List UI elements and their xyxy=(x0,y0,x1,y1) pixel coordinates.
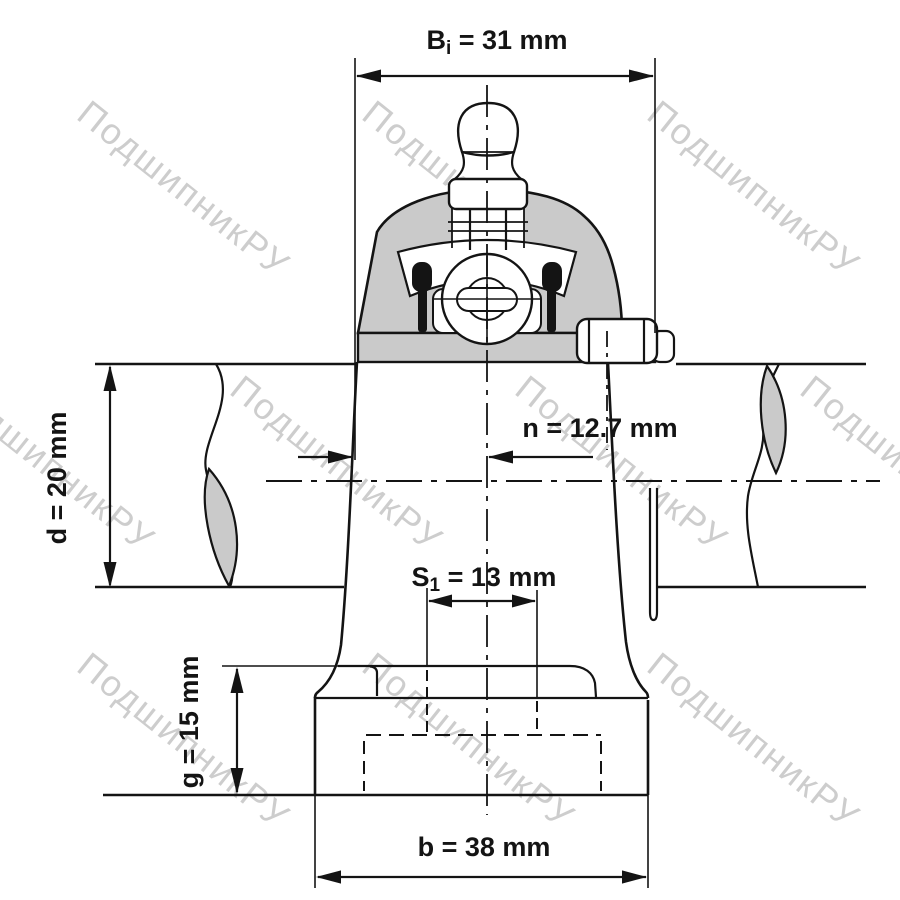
nipple-collar xyxy=(449,179,527,209)
watermark-text: ПодшипникРУ xyxy=(223,367,451,560)
technical-drawing: ПодшипникРУ ПодшипникРУ ПодшипникРУ Подш… xyxy=(0,0,900,900)
dimension-label-b: b = 38 mm xyxy=(418,832,551,862)
dimension-b: b = 38 mm xyxy=(315,795,648,888)
dimension-label-n: n = 12.7 mm xyxy=(522,413,677,443)
shaft xyxy=(95,364,866,587)
inner-ring-end-face xyxy=(650,488,657,620)
watermark-text: ПодшипникРУ xyxy=(640,92,868,285)
nipple-cap xyxy=(458,103,518,156)
watermark-text: ПодшипникРУ xyxy=(355,644,583,837)
watermark-text: ПодшипникРУ xyxy=(508,367,736,560)
shaft-break-right-lens xyxy=(761,366,786,473)
watermark-text: ПодшипникРУ xyxy=(793,367,900,560)
dimension-label-bi: Bi = 31 mm xyxy=(426,25,567,59)
dimension-S1: S1 = 13 mm xyxy=(412,562,557,698)
dimension-label-g: g = 15 mm xyxy=(174,656,204,789)
dimension-label-s1: S1 = 13 mm xyxy=(412,562,557,596)
watermark-text: ПодшипникРУ xyxy=(70,92,298,285)
set-screw xyxy=(577,319,657,363)
drawing-canvas: ПодшипникРУ ПодшипникРУ ПодшипникРУ Подш… xyxy=(0,0,900,900)
watermark-text: ПодшипникРУ xyxy=(640,644,868,837)
watermark-text: ПодшипникРУ xyxy=(0,367,163,560)
shaft-break-left-lens xyxy=(205,469,237,586)
dimension-label-d: d = 20 mm xyxy=(42,412,72,545)
